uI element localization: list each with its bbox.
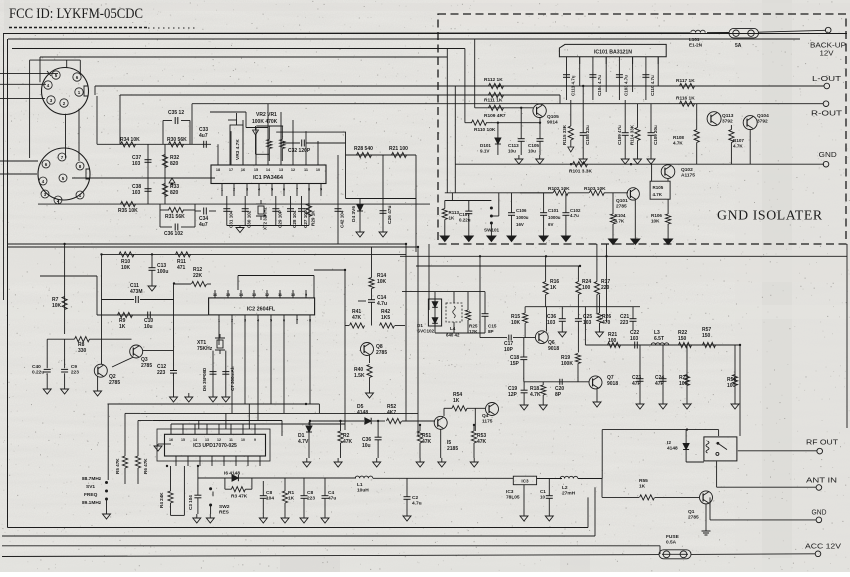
- svg-text:10K: 10K: [511, 320, 521, 326]
- svg-text:89.1MHz: 89.1MHz: [82, 500, 102, 506]
- svg-text:GND: GND: [812, 510, 827, 517]
- svg-text:GND ISOLATER: GND ISOLATER: [717, 208, 823, 223]
- svg-text:I2: I2: [667, 440, 671, 446]
- svg-text:IC2 2604FL: IC2 2604FL: [247, 307, 276, 313]
- svg-text:223: 223: [71, 370, 79, 376]
- svg-text:C103 4.7u: C103 4.7u: [623, 75, 628, 96]
- svg-text:R102 10K: R102 10K: [548, 186, 570, 192]
- svg-text:4.7K: 4.7K: [653, 192, 663, 197]
- svg-text:0.22u: 0.22u: [32, 370, 44, 376]
- svg-text:ANT IN: ANT IN: [806, 478, 837, 485]
- svg-text:103: 103: [630, 336, 639, 342]
- svg-text:VR3 4.7K: VR3 4.7K: [235, 139, 241, 160]
- svg-text:C1: C1: [540, 489, 546, 494]
- svg-text:12K: 12K: [469, 329, 478, 334]
- svg-text:100K 470K: 100K 470K: [252, 119, 278, 125]
- svg-text:10K: 10K: [651, 218, 660, 223]
- svg-text:103: 103: [132, 161, 141, 167]
- svg-text:IC3: IC3: [506, 489, 514, 495]
- svg-text:IC101 BA3121N: IC101 BA3121N: [594, 50, 632, 56]
- svg-text:88.7MHz: 88.7MHz: [82, 476, 102, 482]
- svg-text:4.7u: 4.7u: [570, 213, 579, 218]
- svg-text:47u: 47u: [328, 496, 336, 502]
- svg-text:SV1: SV1: [86, 484, 95, 490]
- svg-text:RF OUT: RF OUT: [806, 440, 839, 447]
- svg-text:10u: 10u: [528, 148, 536, 153]
- svg-text:R115 33K: R115 33K: [562, 124, 567, 145]
- svg-text:L4: L4: [450, 326, 456, 331]
- svg-text:R35 10K: R35 10K: [118, 208, 138, 214]
- svg-text:R1: R1: [288, 490, 294, 496]
- svg-text:9: 9: [305, 293, 307, 297]
- svg-text:8: 8: [309, 319, 311, 323]
- svg-text:100: 100: [608, 338, 617, 344]
- svg-text:100: 100: [727, 383, 736, 389]
- svg-text:L-OUT: L-OUT: [812, 76, 842, 83]
- svg-text:16V: 16V: [516, 222, 524, 227]
- svg-text:100: 100: [679, 381, 688, 387]
- svg-text:2785: 2785: [376, 350, 387, 356]
- svg-text:C113: C113: [508, 143, 519, 148]
- svg-text:C101: C101: [548, 208, 559, 213]
- svg-text:2785: 2785: [688, 515, 699, 521]
- svg-text:Q105: Q105: [547, 114, 559, 120]
- svg-text:9.1V: 9.1V: [480, 148, 490, 153]
- svg-text:R25: R25: [469, 324, 478, 329]
- svg-text:Q102: Q102: [681, 167, 693, 173]
- svg-text:C109 47u: C109 47u: [617, 125, 622, 145]
- svg-text:1K: 1K: [550, 285, 557, 291]
- svg-text:223: 223: [307, 496, 315, 502]
- svg-text:C9: C9: [71, 364, 77, 370]
- svg-text:C36 102: C36 102: [164, 231, 183, 237]
- svg-text:R21 100: R21 100: [389, 146, 408, 152]
- svg-text:14: 14: [193, 438, 197, 442]
- svg-text:11: 11: [229, 438, 233, 442]
- svg-text:R34 10K: R34 10K: [120, 137, 140, 143]
- svg-text:C3 104: C3 104: [188, 495, 193, 510]
- svg-text:C8: C8: [307, 490, 313, 496]
- svg-text:1.5K: 1.5K: [354, 373, 365, 379]
- svg-text:R29 1K: R29 1K: [311, 210, 316, 226]
- svg-text:5: 5: [271, 188, 273, 192]
- svg-text:4.7u: 4.7u: [377, 301, 387, 307]
- svg-text:SVC102: SVC102: [417, 328, 435, 333]
- svg-text:4148: 4148: [667, 446, 678, 452]
- svg-text:16: 16: [241, 168, 245, 172]
- svg-text:L2: L2: [562, 485, 568, 491]
- svg-text:IC1 PA3464: IC1 PA3464: [253, 175, 284, 181]
- svg-text:R110 10K: R110 10K: [474, 127, 496, 133]
- svg-text:4.7u: 4.7u: [412, 501, 422, 507]
- svg-text:103: 103: [583, 320, 592, 326]
- svg-text:220: 220: [601, 285, 610, 291]
- svg-text:4K7: 4K7: [387, 410, 396, 416]
- svg-text:820: 820: [170, 161, 179, 167]
- svg-text:C7 300mAh: C7 300mAh: [230, 366, 235, 391]
- svg-text:2: 2: [231, 319, 233, 323]
- svg-text:IC3 UPD17070-025: IC3 UPD17070-025: [193, 443, 237, 449]
- svg-text:C106: C106: [516, 208, 527, 213]
- svg-text:4.7K: 4.7K: [673, 140, 683, 145]
- svg-text:11: 11: [278, 293, 282, 297]
- svg-text:75KHz: 75KHz: [197, 346, 213, 352]
- svg-text:C32 120P: C32 120P: [288, 148, 311, 154]
- svg-text:D101: D101: [480, 143, 491, 148]
- svg-text:223: 223: [157, 370, 166, 376]
- svg-text:1K: 1K: [639, 484, 646, 490]
- svg-text:1: 1: [218, 319, 220, 323]
- svg-text:2785: 2785: [141, 363, 152, 369]
- svg-text:2185: 2185: [447, 446, 458, 452]
- svg-text:C110 4.7u: C110 4.7u: [650, 75, 655, 96]
- svg-text:C27 100u: C27 100u: [303, 208, 308, 228]
- svg-text:150: 150: [702, 333, 711, 339]
- svg-text:C40: C40: [32, 364, 41, 370]
- svg-text:R104: R104: [615, 213, 626, 218]
- svg-text:100K: 100K: [561, 361, 573, 367]
- svg-text:VR2 VR1: VR2 VR1: [256, 112, 277, 118]
- svg-text:1K: 1K: [119, 324, 126, 330]
- svg-text:R116 1K: R116 1K: [676, 96, 695, 102]
- svg-text:10u: 10u: [508, 148, 516, 153]
- svg-text:10: 10: [316, 168, 320, 172]
- svg-text:Q113: Q113: [722, 113, 734, 119]
- svg-text:330: 330: [78, 348, 87, 354]
- svg-text:1175: 1175: [482, 419, 493, 425]
- svg-text:R101 3.3K: R101 3.3K: [569, 169, 592, 175]
- svg-text:BACK-UP: BACK-UP: [810, 43, 846, 50]
- svg-text:7: 7: [296, 188, 298, 192]
- svg-text:47K: 47K: [477, 439, 487, 445]
- svg-text:1K5: 1K5: [381, 315, 390, 321]
- svg-text:R30 56K: R30 56K: [167, 137, 187, 143]
- svg-text:1K: 1K: [449, 215, 456, 220]
- svg-text:R111 1K: R111 1K: [484, 98, 503, 104]
- svg-text:9018: 9018: [607, 381, 618, 387]
- svg-text:1: 1: [221, 188, 223, 192]
- svg-text:10: 10: [291, 293, 295, 297]
- svg-text:27mH: 27mH: [562, 491, 576, 497]
- svg-text:12: 12: [217, 438, 221, 442]
- svg-text:3792: 3792: [757, 119, 768, 125]
- svg-text:ACC 12V: ACC 12V: [805, 544, 841, 551]
- svg-text:12: 12: [265, 293, 269, 297]
- svg-text:22K: 22K: [193, 273, 203, 279]
- svg-text:1000u: 1000u: [548, 215, 561, 220]
- svg-text:10u: 10u: [362, 443, 371, 449]
- svg-text:D4 3V6: D4 3V6: [351, 206, 357, 222]
- svg-text:104: 104: [266, 496, 274, 502]
- svg-text:8P: 8P: [488, 329, 494, 334]
- svg-text:3: 3: [244, 319, 246, 323]
- svg-text:10K: 10K: [377, 279, 387, 285]
- svg-text:10u: 10u: [144, 324, 153, 330]
- svg-text:5: 5: [270, 319, 272, 323]
- svg-text:Q4: Q4: [482, 413, 489, 419]
- svg-text:C26 47u: C26 47u: [387, 206, 393, 224]
- svg-text:15: 15: [181, 438, 185, 442]
- svg-text:C42 104: C42 104: [340, 210, 345, 228]
- svg-text:R112 1K: R112 1K: [484, 77, 503, 83]
- svg-text:9: 9: [320, 188, 322, 192]
- svg-text:R113: R113: [449, 210, 460, 215]
- svg-text:12P: 12P: [508, 392, 518, 398]
- svg-text:10P: 10P: [504, 347, 514, 353]
- svg-text:2: 2: [233, 188, 235, 192]
- svg-text:47K: 47K: [422, 439, 432, 445]
- svg-text:47P: 47P: [632, 381, 642, 387]
- svg-text:150: 150: [678, 336, 687, 342]
- svg-text:15: 15: [254, 168, 258, 172]
- svg-text:R103 10K: R103 10K: [584, 186, 606, 192]
- svg-text:13: 13: [279, 168, 283, 172]
- svg-text:C15: C15: [488, 324, 497, 329]
- svg-text:C108 22u: C108 22u: [585, 125, 590, 145]
- svg-text:4.7V: 4.7V: [298, 439, 309, 445]
- svg-text:11: 11: [304, 168, 308, 172]
- svg-text:100: 100: [582, 285, 591, 291]
- svg-text:D6 35P08D: D6 35P08D: [202, 367, 207, 391]
- svg-text:4148: 4148: [357, 410, 368, 416]
- svg-text:C104 4.7u: C104 4.7u: [597, 75, 602, 96]
- svg-text:FCC ID: LYKFM-05CDC: FCC ID: LYKFM-05CDC: [9, 6, 143, 22]
- svg-text:7: 7: [296, 319, 298, 323]
- svg-text:R109 4R7: R109 4R7: [484, 113, 506, 119]
- svg-text:470: 470: [602, 320, 611, 326]
- svg-text:13: 13: [252, 293, 256, 297]
- svg-text:47P: 47P: [655, 381, 665, 387]
- svg-text:SW101: SW101: [484, 228, 500, 233]
- svg-text:2785: 2785: [109, 380, 120, 386]
- svg-text:IC3: IC3: [521, 479, 529, 484]
- svg-text:4.7K: 4.7K: [530, 392, 541, 398]
- svg-text:R105: R105: [653, 185, 664, 190]
- svg-text:C8: C8: [266, 490, 272, 496]
- svg-text:D1: D1: [417, 323, 423, 328]
- svg-text:12: 12: [291, 168, 295, 172]
- svg-text:4u7: 4u7: [199, 222, 208, 228]
- svg-text:16: 16: [169, 438, 173, 442]
- svg-text:R108: R108: [673, 135, 684, 140]
- svg-text:10: 10: [540, 494, 546, 499]
- svg-text:9014: 9014: [547, 120, 558, 126]
- svg-text:17: 17: [229, 168, 233, 172]
- svg-text:R4 24K: R4 24K: [159, 492, 164, 508]
- svg-text:R114 33K: R114 33K: [630, 124, 635, 145]
- svg-text:R5 47K: R5 47K: [115, 458, 120, 474]
- svg-text:5A: 5A: [735, 43, 742, 49]
- svg-text:1K: 1K: [288, 496, 295, 502]
- svg-text:L1: L1: [357, 482, 363, 488]
- svg-text:10K: 10K: [52, 303, 62, 309]
- svg-text:10K: 10K: [121, 265, 131, 271]
- svg-text:78L05: 78L05: [506, 495, 520, 501]
- svg-text:4.7K: 4.7K: [615, 218, 625, 223]
- svg-text:10: 10: [241, 438, 245, 442]
- svg-text:12V: 12V: [820, 51, 834, 58]
- svg-text:R31 56K: R31 56K: [165, 214, 185, 220]
- svg-text:Q101: Q101: [616, 198, 628, 204]
- svg-text:C4: C4: [328, 490, 334, 496]
- svg-text:820: 820: [170, 190, 179, 196]
- svg-text:640 42: 640 42: [446, 333, 460, 338]
- svg-text:R107: R107: [733, 138, 744, 143]
- svg-text:3: 3: [246, 188, 248, 192]
- svg-text:Q104: Q104: [757, 113, 769, 119]
- svg-text:4.7K: 4.7K: [733, 143, 743, 148]
- svg-text:GND: GND: [819, 152, 837, 159]
- svg-text:R6 47K: R6 47K: [143, 458, 148, 474]
- svg-text:R3 47K: R3 47K: [231, 494, 248, 500]
- svg-text:47K: 47K: [343, 439, 353, 445]
- svg-text:100u: 100u: [157, 269, 168, 275]
- svg-text:C105: C105: [528, 143, 539, 148]
- svg-text:L101: L101: [689, 37, 700, 42]
- svg-text:3792: 3792: [722, 119, 733, 125]
- svg-text:16: 16: [213, 293, 217, 297]
- svg-text:1K: 1K: [453, 398, 460, 404]
- svg-text:FUSE: FUSE: [666, 534, 680, 540]
- svg-text:R117 1K: R117 1K: [676, 78, 695, 84]
- svg-text:6: 6: [283, 319, 285, 323]
- svg-text:47K: 47K: [352, 315, 362, 321]
- svg-text:R28 540: R28 540: [354, 146, 373, 152]
- svg-text:FREQ: FREQ: [84, 492, 98, 498]
- svg-text:6V: 6V: [548, 222, 553, 227]
- svg-text:15: 15: [226, 293, 230, 297]
- svg-text:9: 9: [254, 438, 256, 442]
- svg-text:471: 471: [177, 265, 186, 271]
- svg-text:SW2: SW2: [219, 504, 230, 510]
- svg-text:8P: 8P: [555, 392, 562, 398]
- svg-text:C2: C2: [412, 495, 418, 501]
- svg-text:8: 8: [308, 188, 310, 192]
- svg-text:103: 103: [547, 320, 556, 326]
- svg-text:18: 18: [216, 168, 220, 172]
- svg-text:1000u: 1000u: [516, 215, 529, 220]
- svg-text:9018: 9018: [548, 346, 559, 352]
- svg-text:0.5A: 0.5A: [666, 540, 677, 546]
- svg-text:4u7: 4u7: [199, 133, 208, 139]
- svg-text:C35 12: C35 12: [168, 110, 184, 116]
- svg-text:473M: 473M: [130, 289, 143, 295]
- svg-text:R55: R55: [639, 478, 648, 484]
- svg-text:13: 13: [205, 438, 209, 442]
- svg-text:A1175: A1175: [681, 173, 695, 179]
- svg-text:R-OUT: R-OUT: [811, 111, 843, 118]
- svg-text:XT2 32KHz: XT2 32KHz: [263, 207, 268, 230]
- svg-text:223: 223: [620, 320, 629, 326]
- svg-text:RES: RES: [219, 510, 230, 516]
- svg-text:103: 103: [132, 190, 141, 196]
- svg-text:E1-2N: E1-2N: [689, 42, 703, 47]
- svg-text:2785: 2785: [616, 204, 627, 210]
- svg-text:C109 20u: C109 20u: [653, 125, 658, 145]
- svg-text:6.5T: 6.5T: [654, 336, 664, 342]
- svg-text:15P: 15P: [510, 361, 520, 367]
- svg-text:Q1: Q1: [688, 509, 695, 515]
- svg-text:R106: R106: [651, 213, 662, 218]
- svg-text:10uH: 10uH: [357, 488, 369, 494]
- svg-text:6: 6: [283, 188, 285, 192]
